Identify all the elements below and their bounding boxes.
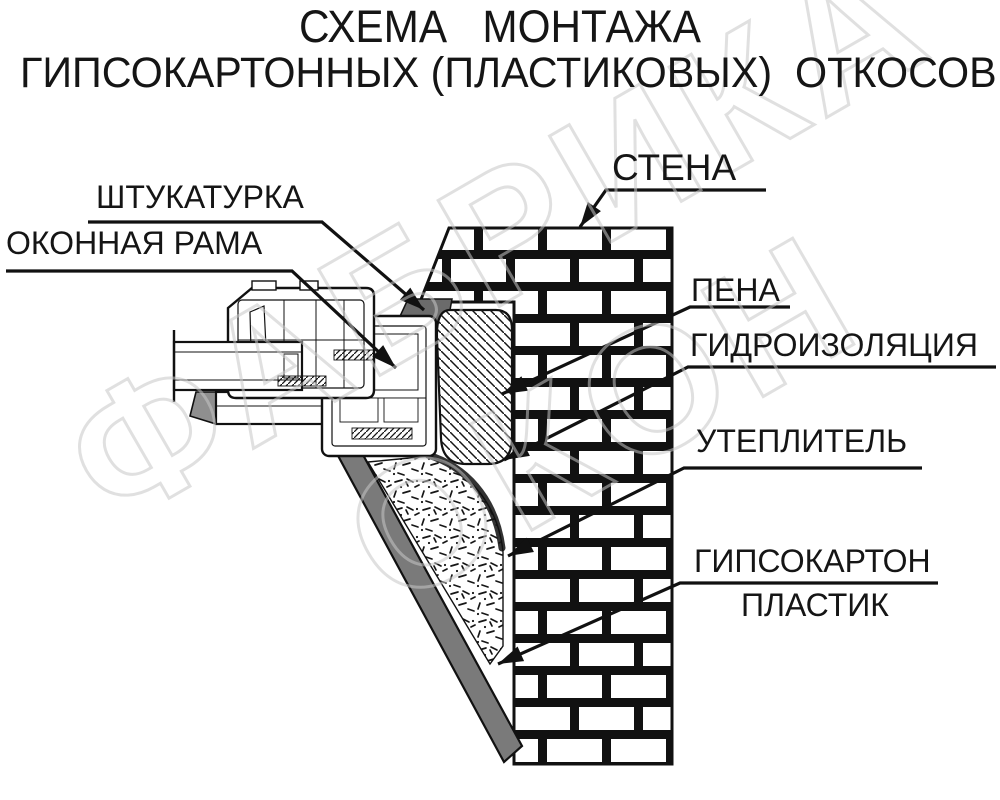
label-waterproofing: ГИДРОИЗОЛЯЦИЯ [690,329,978,361]
label-plaster: ШТУКАТУРКА [96,181,304,213]
label-plastic: ПЛАСТИК [741,589,889,621]
page-root: { "title": { "line1": "СХЕМА МОНТАЖА", "… [0,0,1000,770]
title-line-2: ГИПСОКАРТОННЫХ (ПЛАСТИКОВЫХ) ОТКОСОВ [20,52,980,95]
installation-diagram [0,0,1000,770]
foam-layer [437,310,512,464]
window-frame-section [174,281,436,456]
label-wall: СТЕНА [612,149,736,186]
label-window-frame: ОКОННАЯ РАМА [6,227,262,259]
label-foam: ПЕНА [691,274,780,306]
leader-wall [580,190,766,227]
gasket-strip [334,350,374,360]
gasket-strip [278,376,326,386]
title-line-1: СХЕМА МОНТАЖА [30,4,970,49]
label-insulation: УТЕПЛИТЕЛЬ [696,425,907,457]
label-drywall: ГИПСОКАРТОН [694,545,931,577]
diagram-title: СХЕМА МОНТАЖА ГИПСОКАРТОННЫХ (ПЛАСТИКОВЫ… [0,0,1000,95]
